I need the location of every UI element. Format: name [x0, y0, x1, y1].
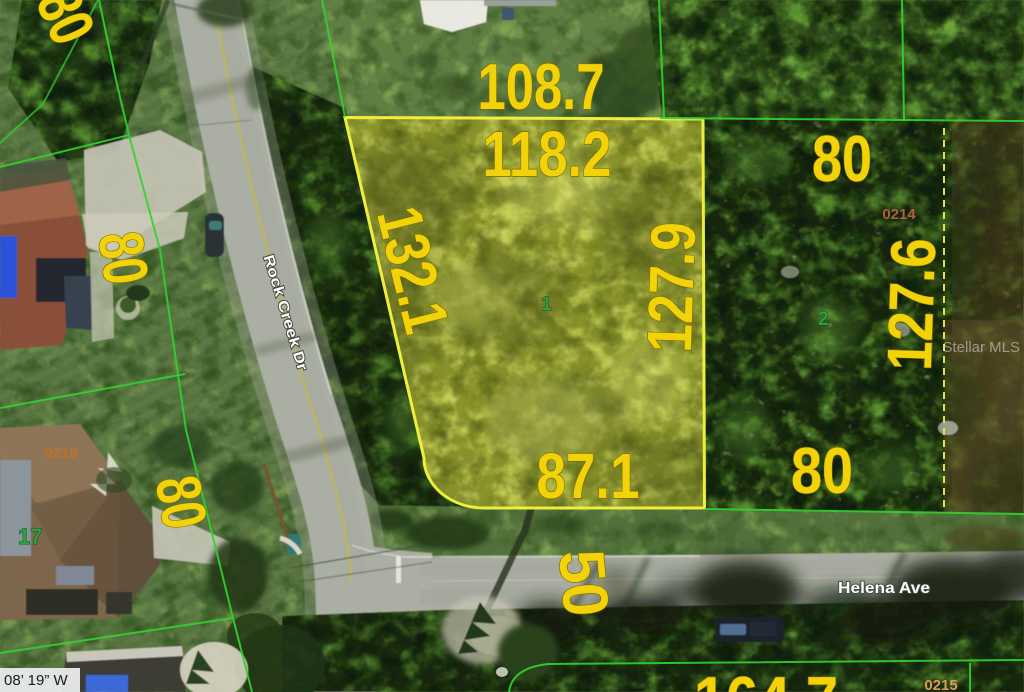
svg-text:118.2: 118.2: [483, 118, 612, 190]
svg-text:127.9: 127.9: [635, 221, 709, 353]
svg-text:80: 80: [812, 122, 872, 195]
svg-text:87.1: 87.1: [537, 440, 640, 512]
svg-text:80: 80: [791, 434, 853, 507]
svg-text:1: 1: [541, 294, 552, 315]
svg-text:0215: 0215: [924, 677, 957, 692]
svg-text:164.7: 164.7: [694, 663, 838, 692]
svg-text:08’ 19” W: 08’ 19” W: [4, 672, 68, 689]
svg-text:127.6: 127.6: [875, 237, 950, 371]
svg-text:2: 2: [818, 309, 829, 330]
svg-text:Stellar MLS: Stellar MLS: [942, 339, 1020, 356]
svg-text:0216: 0216: [44, 445, 77, 462]
svg-text:Helena Ave: Helena Ave: [838, 580, 930, 597]
svg-text:17: 17: [18, 524, 42, 549]
svg-text:80: 80: [85, 227, 162, 288]
svg-text:0214: 0214: [882, 206, 916, 223]
svg-text:50: 50: [545, 547, 622, 619]
svg-text:108.7: 108.7: [478, 50, 605, 123]
